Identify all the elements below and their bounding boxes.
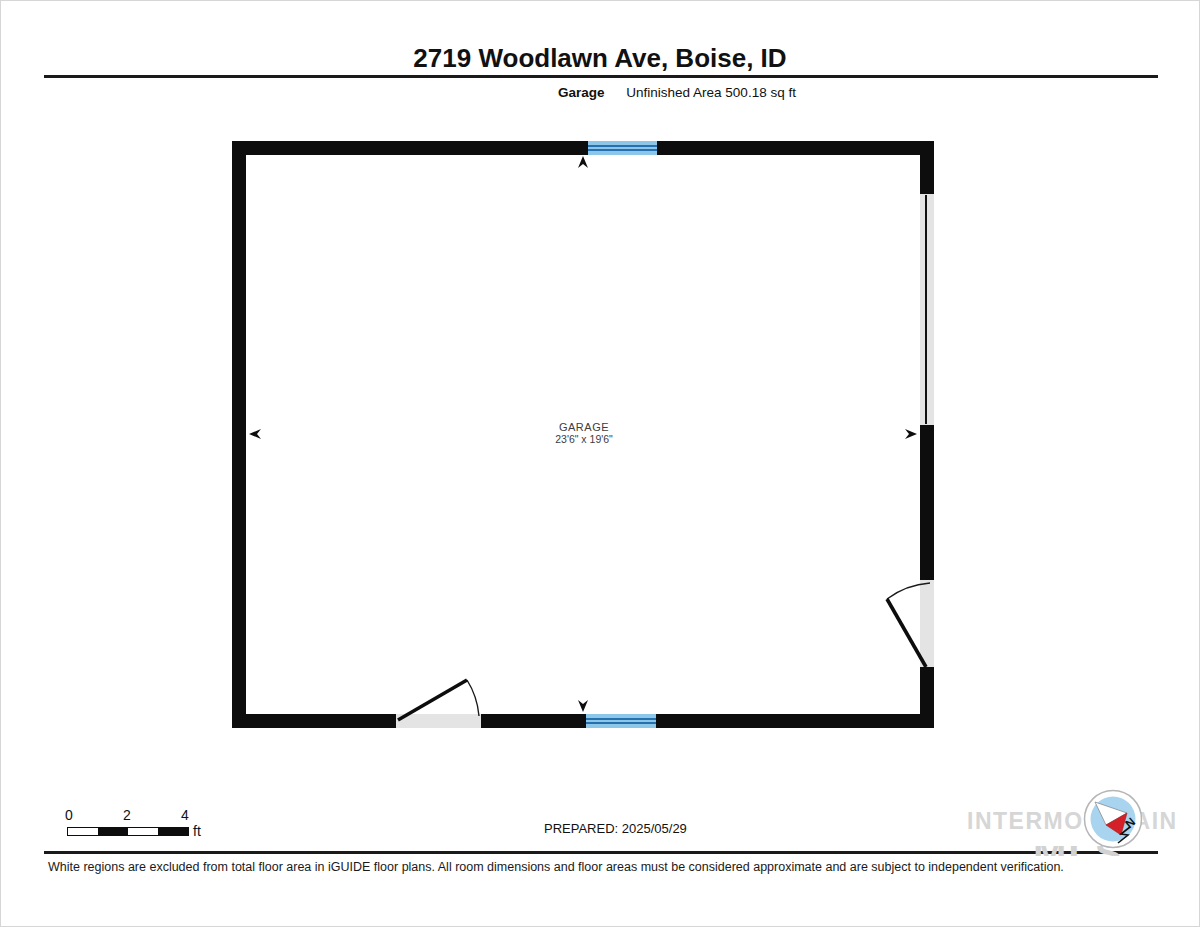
compass-icon <box>1078 784 1148 854</box>
garage-door-panel-line <box>925 195 927 424</box>
wall-left <box>232 141 246 728</box>
direction-arrow-top <box>578 156 588 168</box>
door-opening-right <box>920 580 934 667</box>
scale-bar-segment <box>128 828 158 835</box>
footer-divider <box>44 851 1158 854</box>
window-pane-line <box>586 718 656 720</box>
window-pane-line <box>588 149 657 151</box>
scale-bar-segment <box>158 828 188 835</box>
floorplan-page: 2719 Woodlawn Ave, Boise, ID Garage Unfi… <box>0 0 1200 927</box>
disclaimer-text: White regions are excluded from total fl… <box>48 860 1064 874</box>
window-top <box>588 141 657 155</box>
area-summary: Garage Unfinished Area 500.18 sq ft <box>558 85 796 100</box>
scale-tick-2: 2 <box>123 807 131 823</box>
scale-bar-segment <box>98 828 128 835</box>
room-label: Garage <box>558 85 605 100</box>
room-name: GARAGE <box>514 421 654 433</box>
scale-bar-segment <box>68 828 98 835</box>
room-dimensions: 23'6" x 19'6" <box>514 433 654 445</box>
direction-arrow-bottom <box>578 700 588 712</box>
door-swing-arc-bottom <box>467 680 479 716</box>
scale-unit: ft <box>193 823 201 839</box>
scale-tick-4: 4 <box>181 807 189 823</box>
page-title: 2719 Woodlawn Ave, Boise, ID <box>1 43 1199 74</box>
direction-arrow-left <box>249 429 261 439</box>
door-opening-bottom <box>396 714 481 728</box>
plan-annotations <box>1 1 1200 927</box>
prepared-date: PREPARED: 2025/05/29 <box>544 821 687 836</box>
header-divider <box>44 75 1158 78</box>
scale-tick-0: 0 <box>65 807 73 823</box>
room-label-block: GARAGE 23'6" x 19'6" <box>514 421 654 445</box>
scale-bar <box>67 827 189 836</box>
window-bottom <box>586 714 656 728</box>
window-pane-line <box>586 722 656 724</box>
window-pane-line <box>588 145 657 147</box>
wall-top <box>232 141 934 155</box>
wall-bottom <box>232 714 934 728</box>
direction-arrow-right <box>905 429 917 439</box>
garage-door-opening-right <box>920 194 934 425</box>
area-label: Unfinished Area 500.18 sq ft <box>626 85 796 100</box>
